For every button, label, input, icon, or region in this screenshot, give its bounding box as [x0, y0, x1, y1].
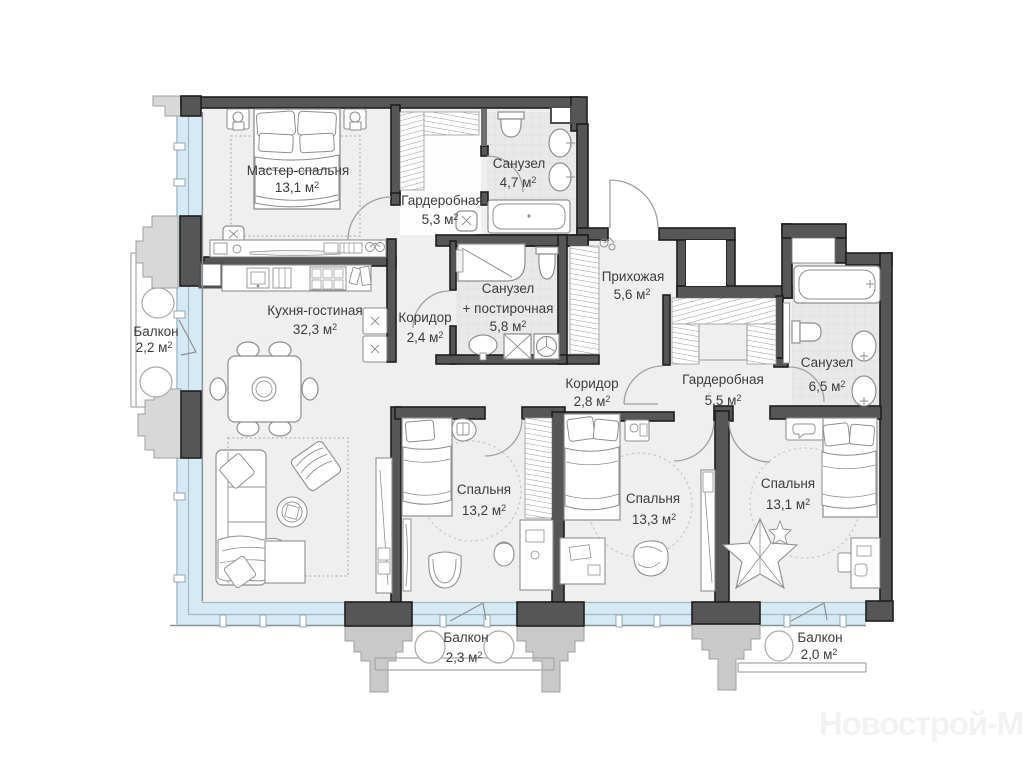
- svg-text:Спальня: Спальня: [457, 482, 511, 497]
- svg-text:Коридор: Коридор: [565, 376, 618, 391]
- svg-text:Спальня: Спальня: [626, 491, 680, 506]
- svg-text:4,7 м2: 4,7 м2: [500, 175, 537, 190]
- svg-text:Балкон: Балкон: [443, 630, 488, 645]
- svg-text:2,0 м2: 2,0 м2: [801, 647, 838, 662]
- svg-text:Кухня-гостиная: Кухня-гостиная: [267, 303, 363, 318]
- svg-text:Гардеробная: Гардеробная: [682, 372, 764, 387]
- svg-text:2,3 м2: 2,3 м2: [446, 650, 483, 665]
- svg-text:5,3 м2: 5,3 м2: [422, 212, 459, 227]
- svg-text:Санузел: Санузел: [801, 355, 854, 370]
- svg-text:Санузел: Санузел: [493, 156, 546, 171]
- svg-text:Спальня: Спальня: [761, 476, 815, 491]
- svg-text:13,1 м2: 13,1 м2: [275, 180, 319, 195]
- svg-text:5,8 м2: 5,8 м2: [490, 319, 527, 334]
- svg-text:Балкон: Балкон: [797, 630, 842, 645]
- svg-text:2,2 м2: 2,2 м2: [136, 340, 173, 355]
- svg-text:13,2 м2: 13,2 м2: [462, 503, 506, 518]
- svg-text:Гардеробная: Гардеробная: [401, 193, 483, 208]
- svg-text:6,5 м2: 6,5 м2: [809, 379, 846, 394]
- svg-text:Новострой-М: Новострой-М: [819, 705, 1023, 742]
- svg-text:2,4 м2: 2,4 м2: [407, 330, 444, 345]
- svg-text:2,8 м2: 2,8 м2: [574, 394, 611, 409]
- svg-text:Санузел: Санузел: [482, 281, 535, 296]
- svg-text:13,1 м2: 13,1 м2: [766, 497, 810, 512]
- svg-text:32,3 м2: 32,3 м2: [293, 322, 337, 337]
- svg-text:13,3 м2: 13,3 м2: [632, 512, 676, 527]
- svg-text:Коридор: Коридор: [398, 310, 451, 325]
- svg-text:+ постирочная: + постирочная: [463, 301, 554, 316]
- svg-text:Балкон: Балкон: [133, 324, 178, 339]
- svg-text:5,5 м2: 5,5 м2: [705, 393, 742, 408]
- svg-text:Прихожая: Прихожая: [602, 269, 665, 284]
- svg-text:Мастер-спальня: Мастер-спальня: [247, 163, 349, 178]
- svg-text:5,6 м2: 5,6 м2: [614, 287, 651, 302]
